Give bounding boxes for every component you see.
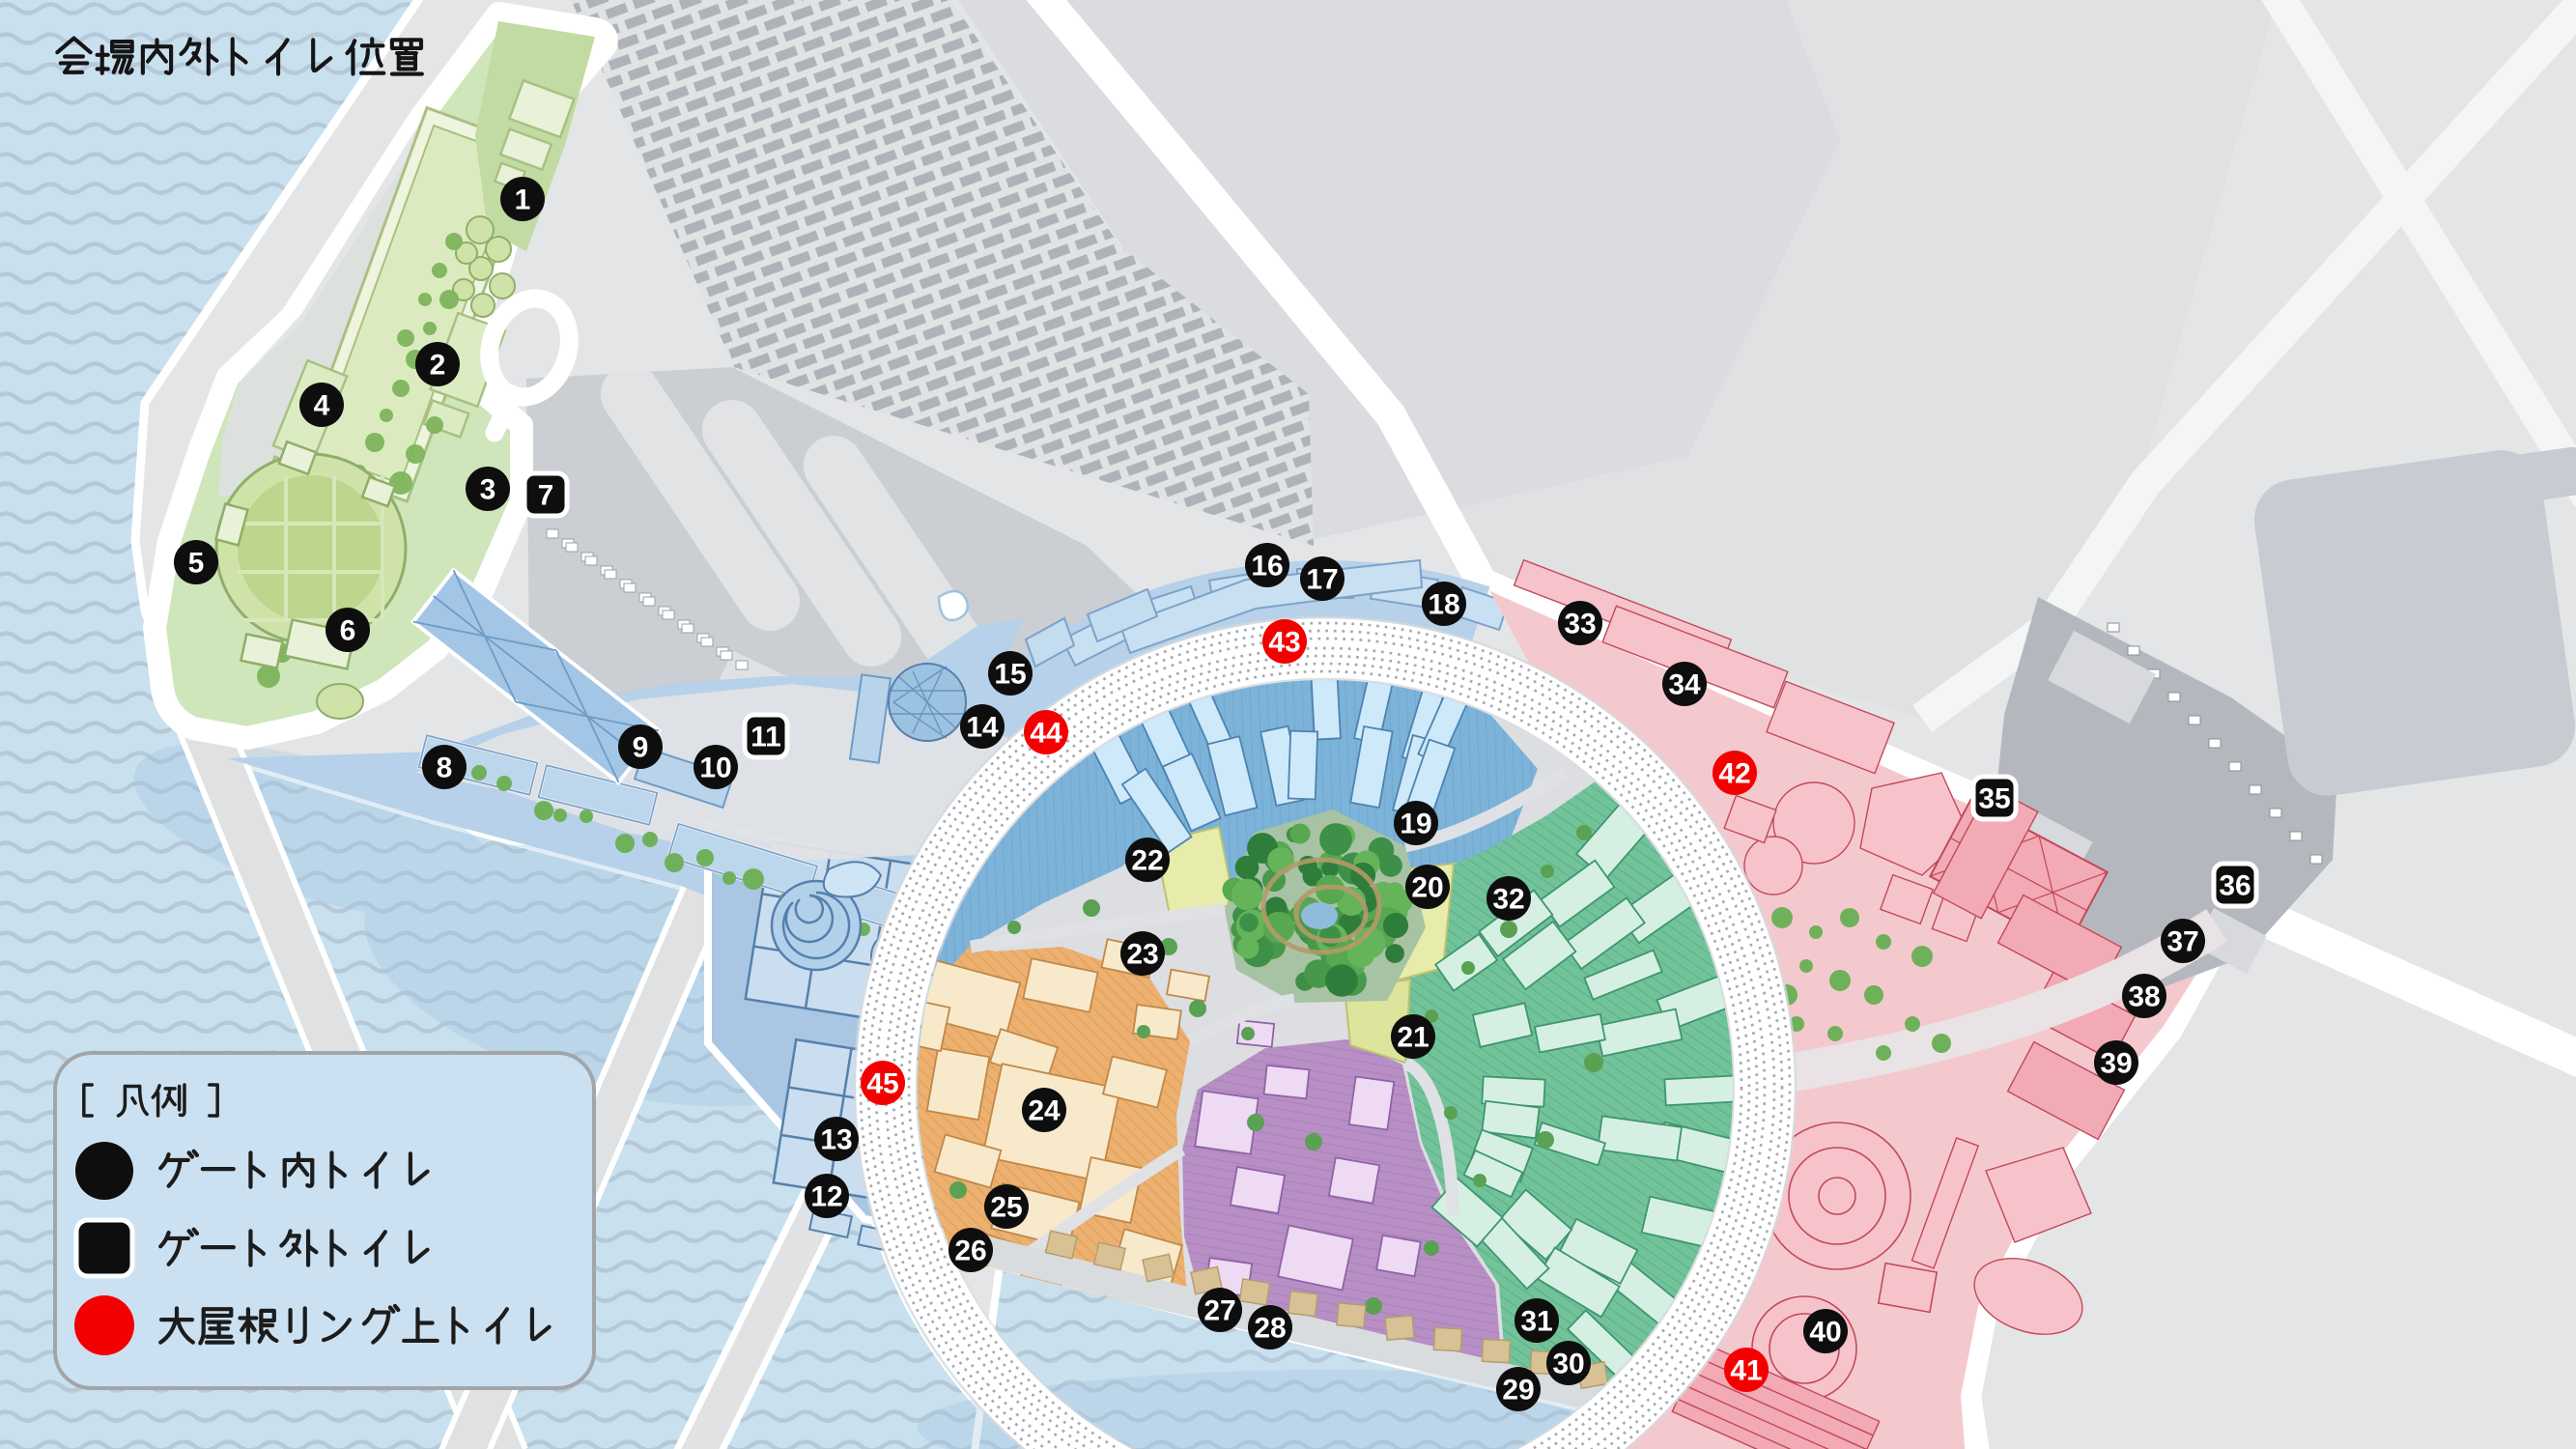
svg-text:35: 35 xyxy=(1978,783,2010,815)
svg-text:43: 43 xyxy=(1268,627,1300,659)
svg-text:9: 9 xyxy=(633,732,649,764)
svg-text:28: 28 xyxy=(1254,1313,1286,1345)
svg-text:25: 25 xyxy=(990,1192,1022,1224)
svg-text:37: 37 xyxy=(2166,926,2198,958)
svg-text:6: 6 xyxy=(340,615,356,647)
svg-text:38: 38 xyxy=(2128,981,2160,1013)
svg-text:29: 29 xyxy=(1502,1375,1534,1406)
svg-text:8: 8 xyxy=(437,753,453,784)
svg-text:7: 7 xyxy=(538,480,554,512)
svg-text:12: 12 xyxy=(810,1181,842,1213)
svg-text:36: 36 xyxy=(2219,870,2250,902)
svg-text:1: 1 xyxy=(515,185,531,216)
svg-text:21: 21 xyxy=(1397,1022,1429,1054)
svg-text:22: 22 xyxy=(1131,845,1163,877)
svg-text:30: 30 xyxy=(1552,1349,1584,1380)
svg-text:44: 44 xyxy=(1030,718,1062,750)
svg-text:40: 40 xyxy=(1809,1317,1841,1349)
svg-text:17: 17 xyxy=(1306,564,1338,596)
svg-text:13: 13 xyxy=(820,1124,852,1156)
svg-text:31: 31 xyxy=(1520,1306,1552,1338)
svg-text:15: 15 xyxy=(994,659,1026,691)
svg-text:20: 20 xyxy=(1411,872,1443,904)
svg-text:3: 3 xyxy=(480,474,496,506)
svg-text:23: 23 xyxy=(1126,939,1158,971)
svg-text:16: 16 xyxy=(1251,551,1283,582)
svg-text:10: 10 xyxy=(699,753,731,784)
svg-text:33: 33 xyxy=(1564,609,1596,640)
svg-text:4: 4 xyxy=(314,390,330,422)
svg-text:39: 39 xyxy=(2100,1048,2132,1080)
svg-text:32: 32 xyxy=(1492,884,1524,916)
svg-text:5: 5 xyxy=(188,548,205,580)
svg-text:14: 14 xyxy=(966,712,999,744)
svg-text:2: 2 xyxy=(430,350,446,382)
svg-text:18: 18 xyxy=(1428,589,1459,621)
svg-text:24: 24 xyxy=(1028,1095,1061,1127)
svg-text:42: 42 xyxy=(1718,758,1750,790)
svg-text:34: 34 xyxy=(1668,669,1701,701)
svg-text:26: 26 xyxy=(954,1236,986,1267)
svg-text:19: 19 xyxy=(1400,809,1431,840)
svg-text:45: 45 xyxy=(866,1068,898,1100)
svg-text:41: 41 xyxy=(1730,1355,1762,1387)
svg-text:11: 11 xyxy=(750,722,781,753)
svg-text:27: 27 xyxy=(1203,1295,1235,1327)
